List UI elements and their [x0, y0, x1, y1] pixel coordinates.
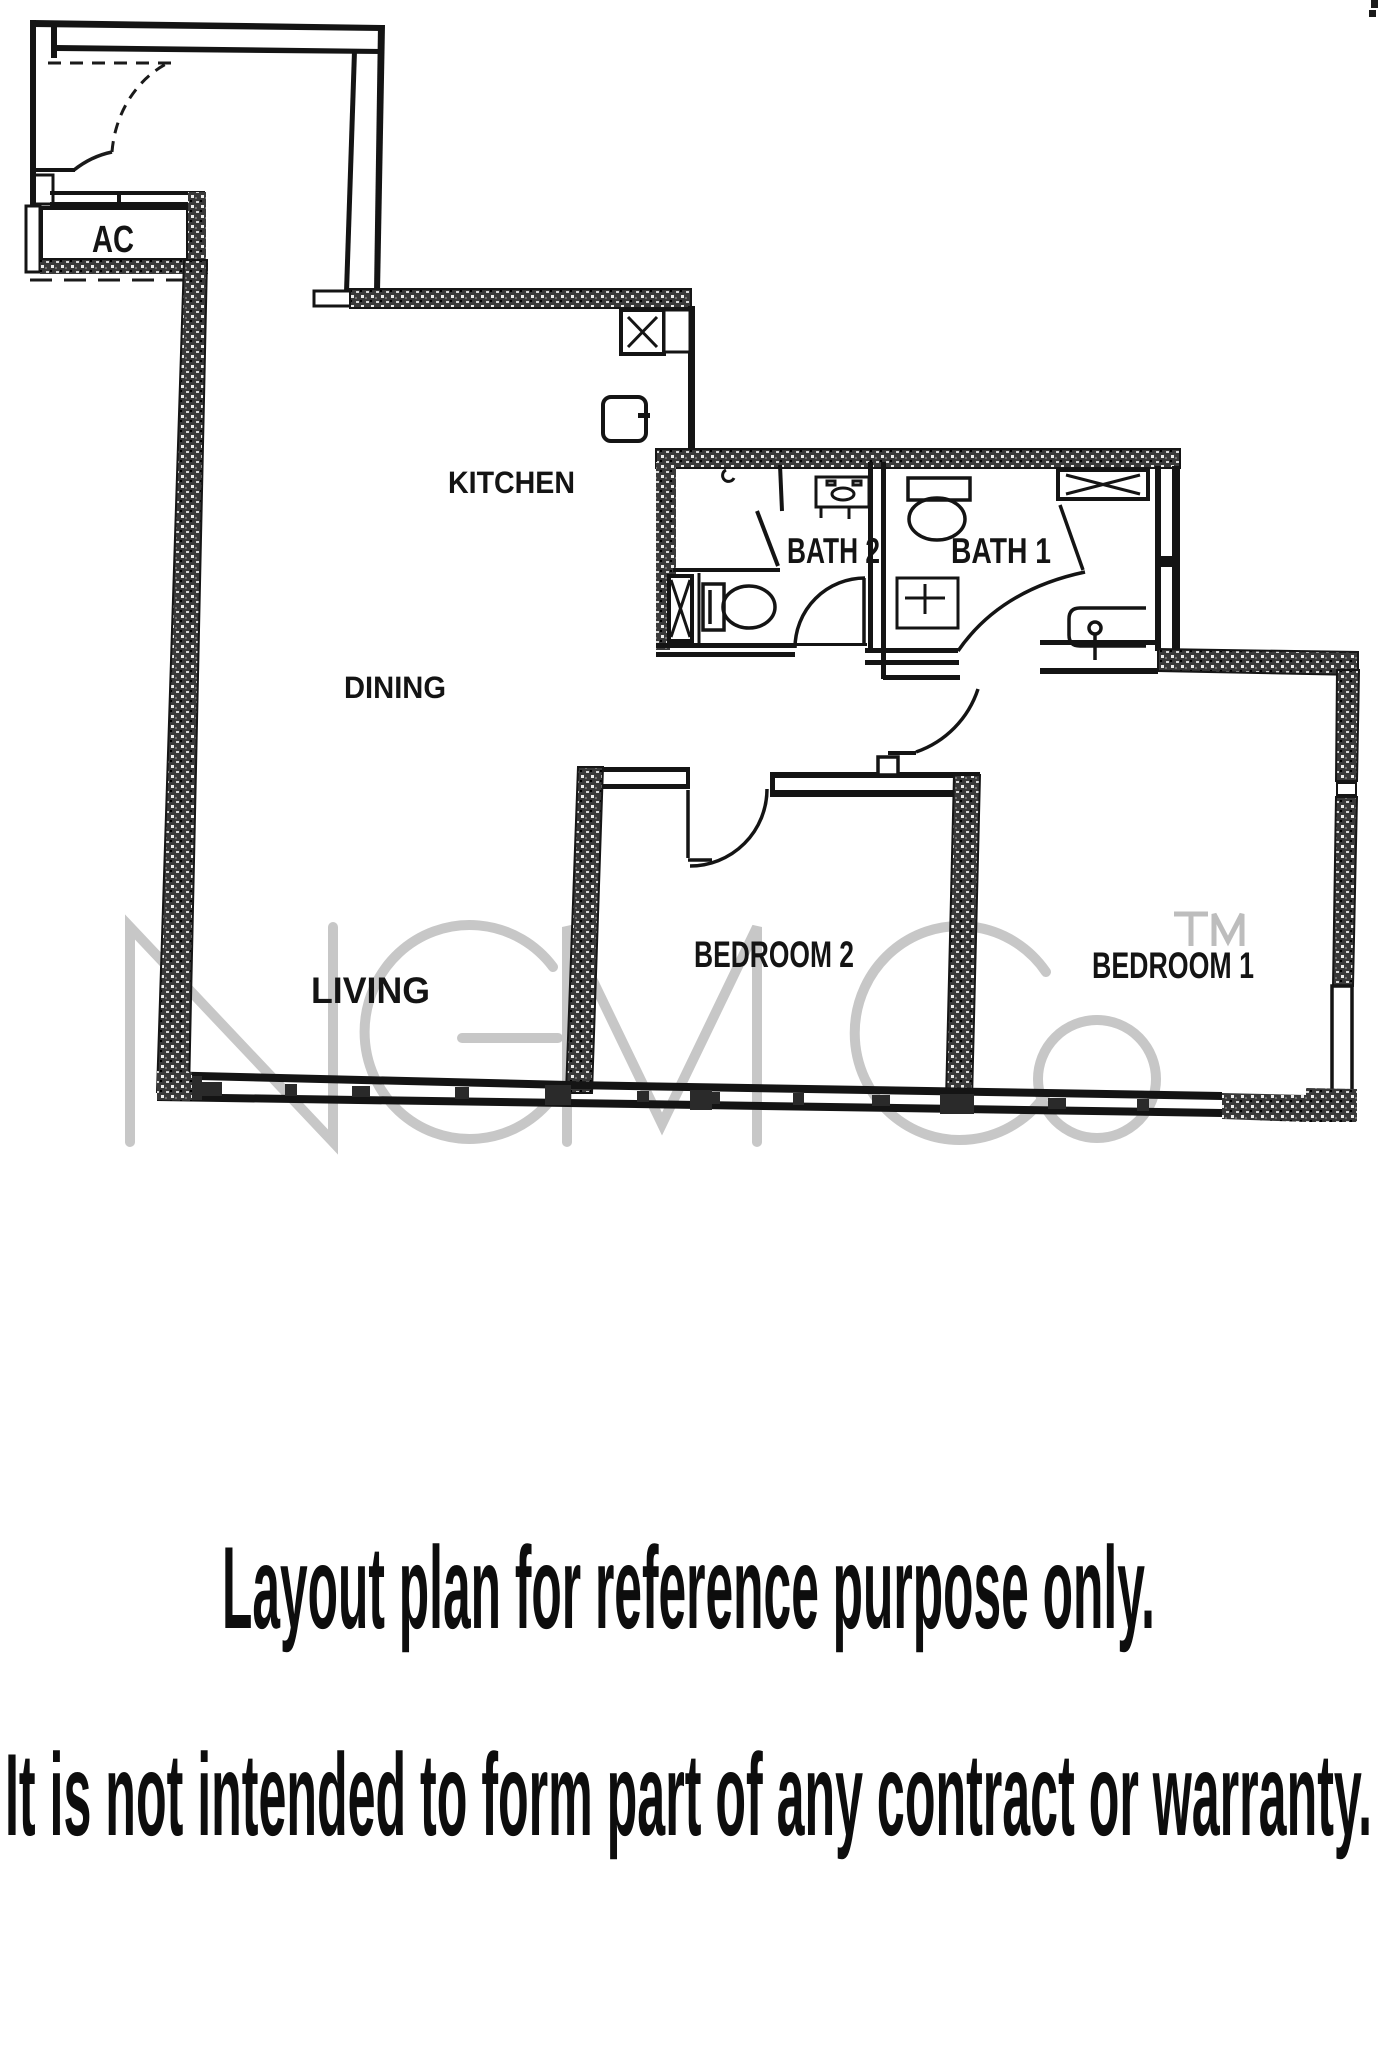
svg-text:LIVING: LIVING: [311, 970, 430, 1011]
svg-text:BATH 1: BATH 1: [951, 530, 1051, 571]
svg-text:KITCHEN: KITCHEN: [448, 465, 575, 500]
svg-text:BATH 2: BATH 2: [787, 530, 880, 571]
svg-text:Layout plan for reference purp: Layout plan for reference purpose only.: [222, 1522, 1155, 1653]
svg-text:DINING: DINING: [344, 670, 446, 705]
svg-text:BEDROOM 1: BEDROOM 1: [1092, 945, 1254, 986]
svg-text:AC: AC: [92, 219, 134, 261]
svg-text:It is not intended to form par: It is not intended to form part of any c…: [5, 1729, 1372, 1860]
svg-text:BEDROOM 2: BEDROOM 2: [694, 934, 854, 975]
